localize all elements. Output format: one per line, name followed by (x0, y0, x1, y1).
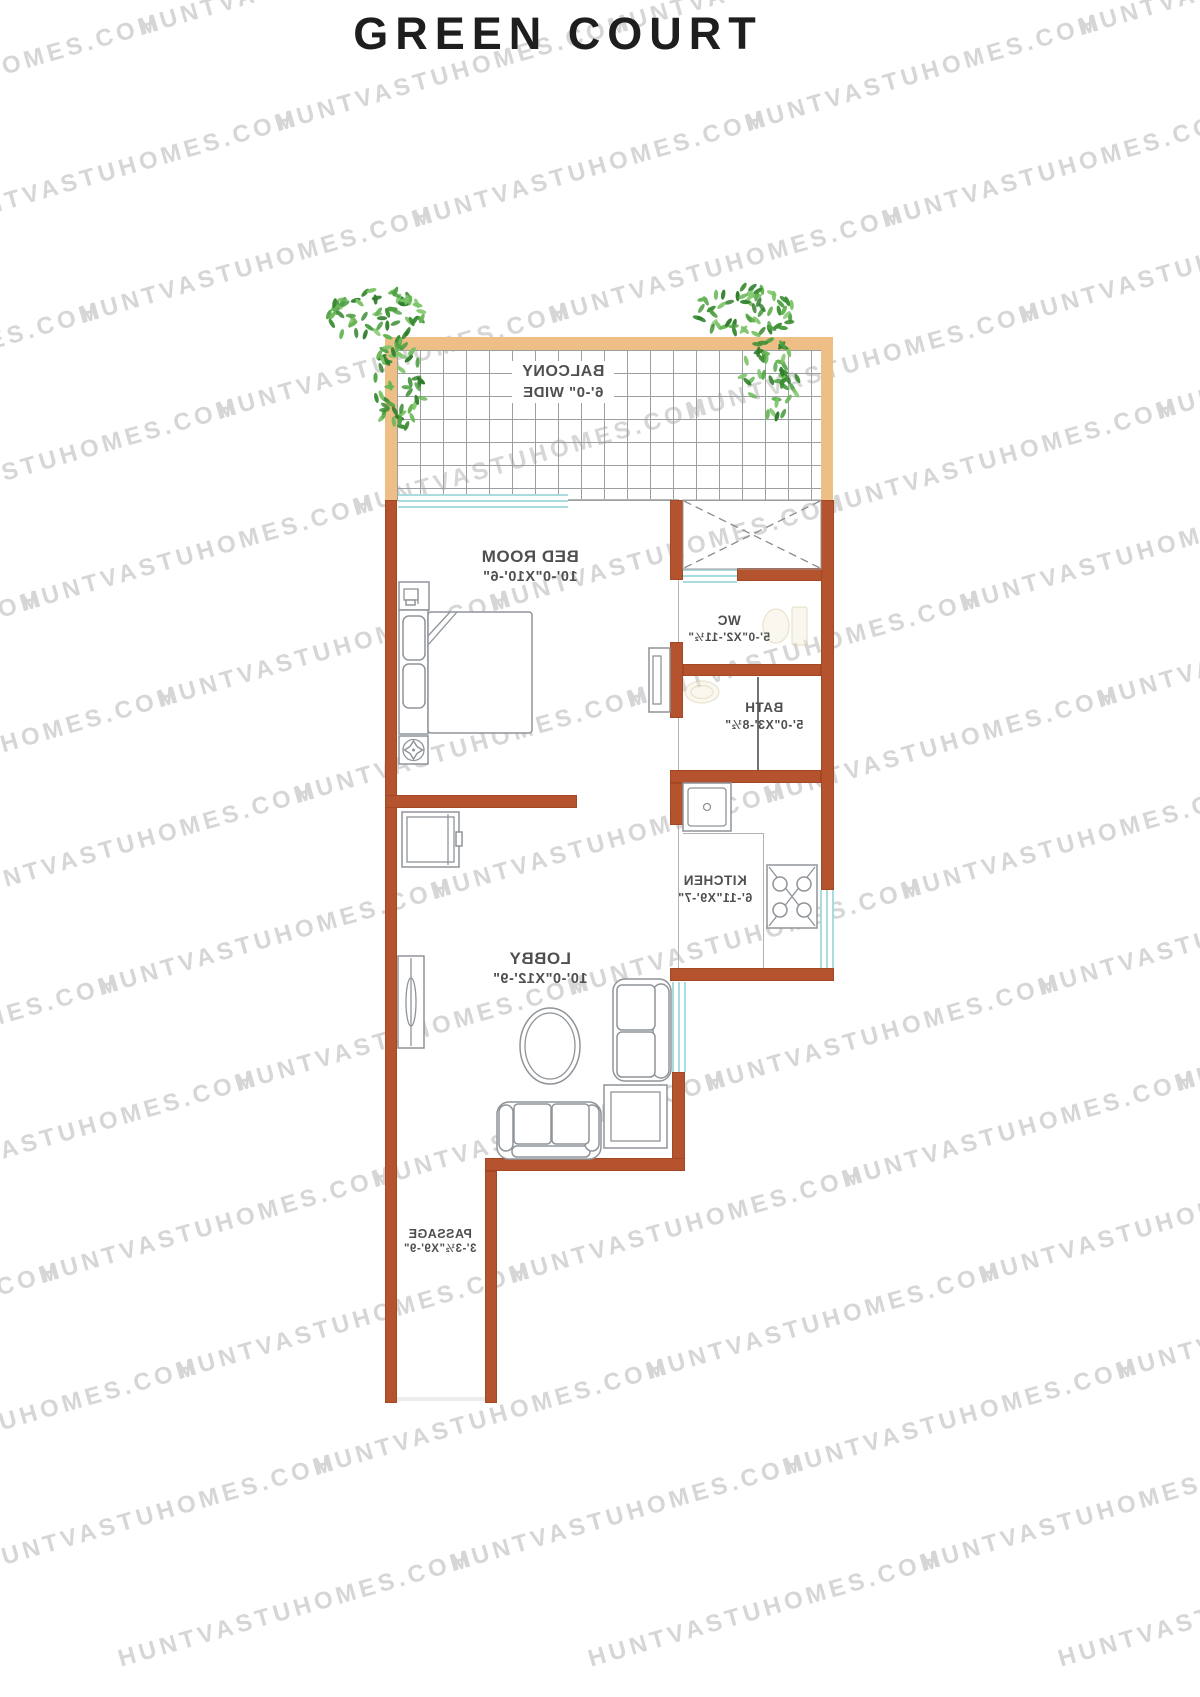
page-title: GREEN COURT (0, 8, 1116, 60)
room-label-bath: BATH5'-0"X3'-8½" (654, 699, 874, 733)
room-label-balcony: BALCONY6'-0" WIDE (453, 361, 673, 404)
room-labels: BALCONY6'-0" WIDE BED ROOM10'-0"X10'-6" … (0, 0, 1200, 1697)
room-label-kitchen: KITCHEN6'-11"X9'-7" (605, 872, 825, 906)
room-label-passage: PASSAGE3'-3½"X9'-9" (330, 1226, 550, 1257)
room-label-lobby: LOBBY10'-0"X12'-9" (430, 948, 650, 989)
floor-plan-page: HUNTVASTUHOMES.COMHUNTVASTUHOMES.COMHUNT… (0, 0, 1200, 1697)
room-label-wc: WC5'-0"X2'-11½" (619, 612, 839, 645)
room-label-bedroom: BED ROOM10'-0"X10'-6" (420, 546, 640, 587)
